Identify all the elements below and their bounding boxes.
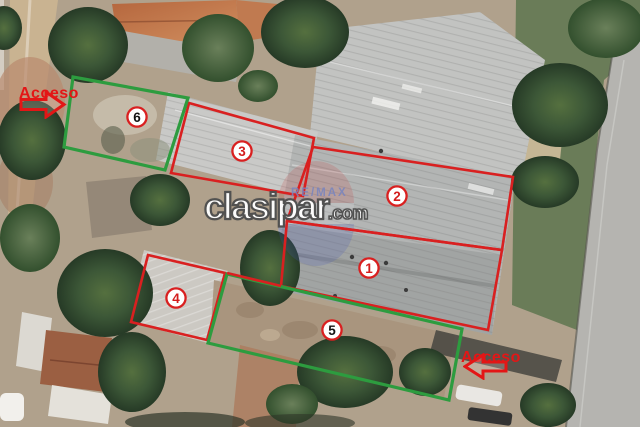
access-label-bottom-right: Acceso (461, 350, 521, 366)
region-6-badge: 6 (127, 107, 146, 126)
arrow-left-icon (463, 353, 508, 380)
region-3-badge: 3 (232, 141, 251, 160)
region-1-badge: 1 (359, 258, 378, 277)
region-1-number: 1 (365, 261, 373, 276)
region-5-number: 5 (328, 323, 336, 338)
connector-line-0 (227, 273, 281, 286)
region-4-number: 4 (172, 291, 180, 306)
region-5-badge: 5 (322, 320, 341, 339)
region-2-badge: 2 (387, 186, 406, 205)
satellite-annotated-image: 123456 RE/MAX clasipar.com Acceso Acceso (0, 0, 640, 427)
region-3-number: 3 (238, 144, 246, 159)
region-6-outline (64, 77, 188, 170)
region-4-badge: 4 (166, 288, 185, 307)
watermark-suffix-text: .com (328, 203, 368, 223)
watermark-clasipar: clasipar.com (204, 186, 368, 228)
region-6-number: 6 (133, 110, 141, 125)
access-label-top-left: Acceso (19, 86, 79, 102)
region-2-number: 2 (393, 189, 401, 204)
arrow-right-icon (19, 90, 67, 119)
watermark-main-text: clasipar (204, 186, 328, 227)
